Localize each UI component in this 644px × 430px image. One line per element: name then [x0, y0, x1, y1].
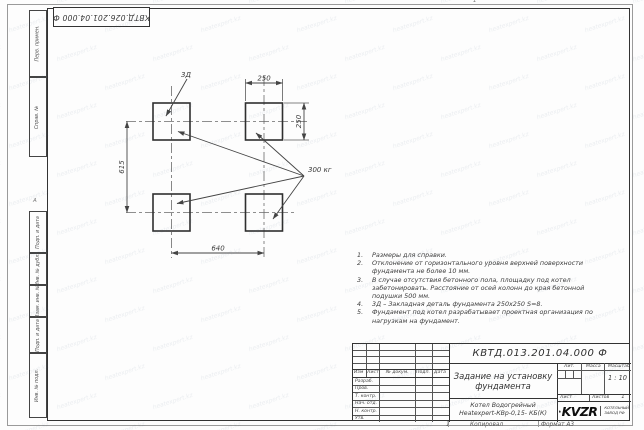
lit-label: Лит. — [564, 364, 575, 369]
notes-list: 1.Размеры для справки.2.Отклонение от го… — [351, 251, 629, 325]
sheet-label: Лист — [560, 395, 572, 400]
note-item: 3.В случае отсутствия бетонного пола, пл… — [351, 276, 629, 301]
title-block: Изм Лист № докум. Подп. Дата Разраб. Про… — [352, 343, 630, 421]
product-name: Котел Водогрейный Heatexpert-КВр-0,15- К… — [451, 399, 555, 421]
note-line: подушки 500 мм. — [372, 292, 629, 300]
note-item: 4.3Д – Закладная деталь фундамента 250х2… — [351, 300, 629, 308]
copied-label: Копировал — [470, 422, 503, 428]
bottom-margin-tick — [538, 421, 539, 427]
staff-razrab: Разраб. — [355, 379, 373, 384]
staff-tkontr: Т. контр. — [355, 394, 376, 399]
sheets-value: 1 — [617, 394, 629, 400]
note-line: фундамента не более 10 мм. — [372, 267, 629, 275]
note-line: В случае отсутствия бетонного пола, площ… — [372, 276, 629, 284]
note-line: нагрузкам на фундамент. — [372, 317, 629, 325]
rev-col-data: Дата — [434, 370, 446, 375]
note-number: 1. — [357, 251, 363, 259]
drawing-title: Задание на установку фундамента — [451, 364, 555, 397]
note-line: Размеры для справки. — [372, 251, 629, 259]
note-line: Отклонение от горизонтального уровня вер… — [372, 259, 629, 267]
note-line: забетонировать. Расстояние от осей колон… — [372, 284, 629, 292]
scale-value: 1 : 10 — [604, 374, 631, 382]
note-line: 3Д – Закладная деталь фундамента 250х250… — [372, 300, 629, 308]
logo-caption-line2: ЗАВОД РФ — [604, 411, 629, 416]
product-name-line2: Heatexpert-КВр-0,15- КБ(К) — [459, 410, 547, 418]
note-number: 4. — [357, 300, 363, 308]
kvzr-logo: KVZR КОТЕЛЬНЫЙ ЗАВОД РФ — [559, 402, 629, 420]
rev-col-docnum: № докум. — [386, 370, 409, 375]
drawing-sheet: 1 А КВТД.026.201.04.000 Ф Перв. примен. … — [0, 0, 644, 430]
staff-nkontr: Н. контр. — [355, 409, 377, 414]
dim-top-width-label: 250 — [257, 75, 271, 83]
note-item: 2.Отклонение от горизонтального уровня в… — [351, 259, 629, 275]
dim-bottom-width-label: 640 — [211, 245, 225, 253]
load-label: 300 кг — [308, 166, 332, 174]
note-number: 2. — [357, 259, 363, 267]
scale-label: Масштаб — [608, 364, 630, 369]
dim-left-height-label: 615 — [118, 160, 126, 174]
rev-col-podp: Подп. — [416, 370, 430, 375]
product-name-line1: Котел Водогрейный — [470, 402, 536, 410]
extension-lines — [246, 79, 310, 140]
doc-number: КВТД.013.201.04.000 Ф — [449, 344, 631, 363]
dim-right-height-label: 250 — [295, 114, 303, 128]
note-line: Фундамент под котел разрабатывает проект… — [372, 308, 629, 316]
note-item: 1.Размеры для справки. — [351, 251, 629, 259]
kvzr-flame-icon — [559, 405, 561, 418]
staff-nachotd: Нач. отд. — [355, 401, 377, 406]
staff-prov: Пров. — [355, 386, 368, 391]
rev-col-izm: Изм — [354, 370, 363, 375]
kvzr-logo-text: KVZR — [562, 404, 598, 419]
rev-col-list: Лист — [367, 370, 379, 375]
note-number: 5. — [357, 308, 363, 316]
embedded-part-label: 3Д — [181, 71, 191, 79]
note-number: 3. — [357, 276, 363, 284]
kvzr-logo-caption: КОТЕЛЬНЫЙ ЗАВОД РФ — [600, 406, 629, 415]
note-item: 5.Фундамент под котел разрабатывает прое… — [351, 308, 629, 324]
mass-label: Масса — [586, 364, 601, 369]
sheets-label: Листов — [592, 395, 609, 400]
staff-utv: Утв. — [355, 416, 365, 421]
bottom-margin-tick — [448, 421, 449, 427]
format-label: Формат А3 — [541, 422, 574, 428]
